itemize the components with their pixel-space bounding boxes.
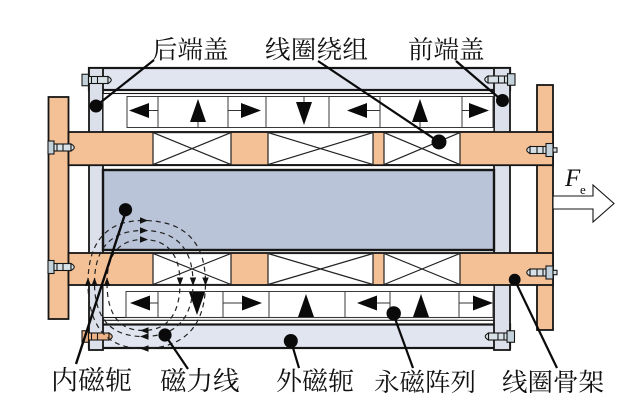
svg-text:F: F	[564, 165, 581, 192]
svg-text:e: e	[580, 182, 586, 197]
